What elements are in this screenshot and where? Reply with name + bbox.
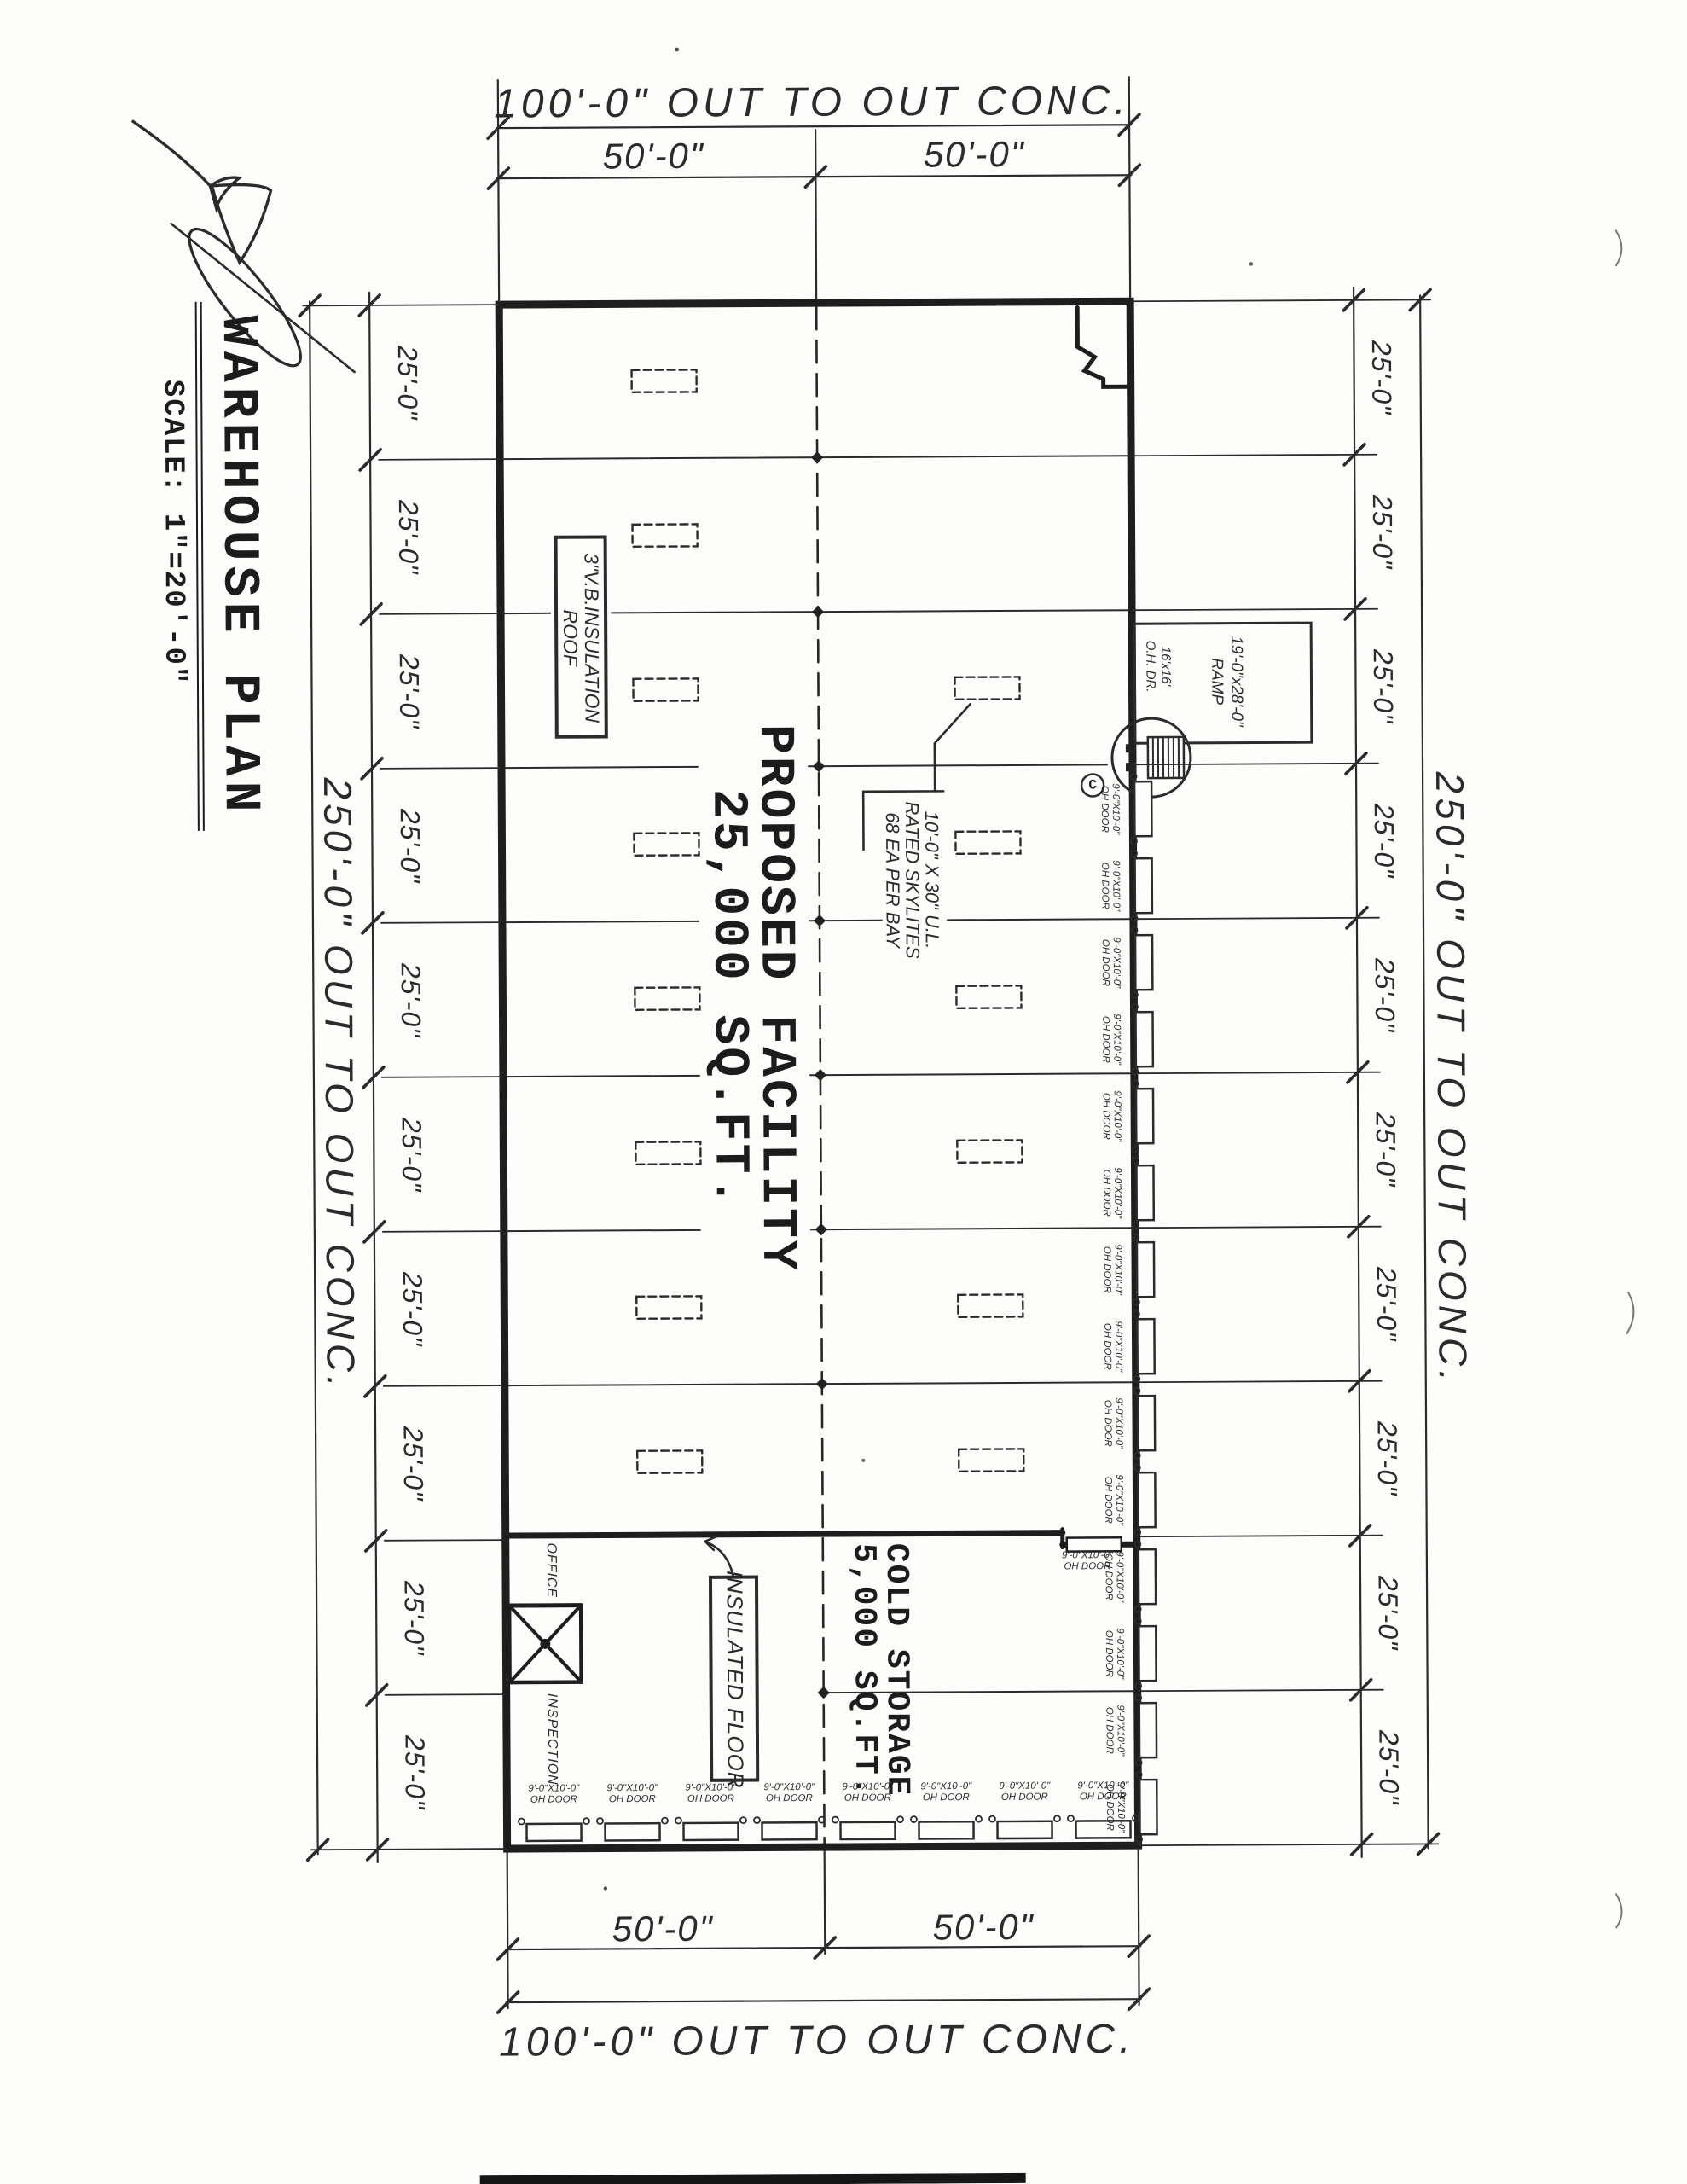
bay-centerline-node xyxy=(815,1069,826,1081)
bay-dim-label-left: 25'-0" xyxy=(394,808,426,883)
oh-door-label-bottom-line: 9'-0"X10'-0" xyxy=(1077,1780,1128,1792)
left-extension-line xyxy=(386,1694,505,1695)
bay-centerline-node xyxy=(814,915,826,926)
oh-door-label-line: 9'-0"X10'-0" xyxy=(1112,1321,1123,1372)
ramp-line2: RAMP xyxy=(1206,636,1226,726)
left-extension-line xyxy=(311,1849,506,1850)
bay-dim-label-left: 25'-0" xyxy=(398,1734,430,1809)
oh-door-label-line: 9'-0"X10'-0" xyxy=(1110,860,1122,911)
bottom-overall-dim-line xyxy=(507,1999,1141,2002)
dock-door-symbol xyxy=(1135,935,1152,990)
dock-door-symbol xyxy=(997,1821,1052,1838)
oh-door-label-line: 9'-0"X10'-0" xyxy=(1113,1397,1124,1449)
oh-door-label-line: OH DOOR xyxy=(1099,783,1110,834)
oh-door-label-bottom-line: OH DOOR xyxy=(999,1792,1050,1804)
dock-door-symbol xyxy=(1137,1242,1154,1297)
oh-door-label-bottom-line: OH DOOR xyxy=(606,1794,658,1806)
oh-door-label: 9'-0"X10'-0"OH DOOR xyxy=(1099,937,1122,988)
dim-top-overall: 100'-0" OUT TO OUT CONC. xyxy=(494,78,1130,128)
bay-dim-label-left: 25'-0" xyxy=(397,1580,429,1655)
dim-top-seg-left: 50'-0" xyxy=(603,136,704,177)
door-hinge-dot xyxy=(1054,1815,1060,1821)
dock-door-symbol xyxy=(1139,1549,1156,1604)
bay-centerline-node xyxy=(811,451,823,463)
dock-door-symbol xyxy=(919,1821,973,1838)
sheet-title-wrap: WAREHOUSE PLAN xyxy=(200,315,269,816)
oh-door-label-line: OH DOOR xyxy=(1101,1167,1112,1218)
bay-line xyxy=(507,1076,699,1077)
left-extension-line xyxy=(383,1231,502,1232)
oh-door-label: 9'-0"X10'-0"OH DOOR xyxy=(1104,1628,1126,1679)
dim-bottom-seg-right: 50'-0" xyxy=(933,1907,1035,1949)
oh-door-label-bottom: 9'-0"X10'-0"OH DOOR xyxy=(1077,1780,1128,1804)
ohdr-line1: 16'x16' xyxy=(1157,641,1173,693)
door-hinge-dot xyxy=(583,1818,589,1824)
oh-door-label-line: OH DOOR xyxy=(1099,937,1110,988)
dim-top-seg-right: 50'-0" xyxy=(924,134,1025,176)
oh-door-label-line: 9'-0"X10'-0" xyxy=(1112,1244,1123,1295)
oh-door-label: 9'-0"X10'-0"OH DOOR xyxy=(1099,783,1121,834)
bay-dim-label-right: 25'-0" xyxy=(1366,494,1398,569)
oh-door-label-line: OH DOOR xyxy=(1103,1551,1114,1602)
oh-door-label-line: 9'-0"X10'-0" xyxy=(1114,1551,1125,1602)
left-extension-line xyxy=(303,305,497,305)
roof-note: 3"V.B.INSULATION ROOF xyxy=(559,553,603,723)
dock-door-symbol xyxy=(526,1824,581,1841)
facility-line2: 25,000 SQ.FT. xyxy=(704,724,753,1273)
bay-dim-label-right: 25'-0" xyxy=(1369,957,1400,1032)
door-hinge-dot xyxy=(1068,1815,1074,1821)
oh-door-label-bottom: 9'-0"X10'-0"OH DOOR xyxy=(528,1783,579,1806)
oh-door-label: 9'-0"X10'-0"OH DOOR xyxy=(1104,1705,1126,1756)
left-extension-line xyxy=(385,1540,504,1541)
bay-centerline-node xyxy=(815,1223,827,1235)
inspection-label: INSPECTION xyxy=(544,1693,560,1786)
right-extension-line xyxy=(1140,1844,1439,1845)
bay-dim-label-left: 25'-0" xyxy=(393,653,425,729)
oh-door-label-line: 9'-0"X10'-0" xyxy=(1111,1167,1122,1218)
bay-dim-label-right: 25'-0" xyxy=(1371,1575,1403,1650)
dock-door-symbol xyxy=(1137,1319,1154,1374)
skylight xyxy=(958,1294,1023,1316)
ramp-line1: 19'-0"x28'-0" xyxy=(1226,636,1245,726)
oh-door-label: 9'-0"X10'-0"OH DOOR xyxy=(1103,1551,1125,1602)
oh-door-label-bottom: 9'-0"X10'-0"OH DOOR xyxy=(606,1783,658,1806)
bay-dim-label-left: 25'-0" xyxy=(397,1271,428,1346)
dim-left-overall: 250'-0" OUT TO OUT CONC. xyxy=(315,777,364,1391)
insulated-floor-label: INSULATED FLOOR xyxy=(721,1571,748,1789)
bay-dim-label-right: 25'-0" xyxy=(1372,1729,1404,1804)
dock-door-symbol xyxy=(1139,1780,1157,1834)
oh-door-label-bottom-line: 9'-0"X10'-0" xyxy=(763,1782,815,1794)
skylite-note-line1: 10'-0" X 30" U.L. xyxy=(922,801,942,958)
oh-door-label-bottom-line: OH DOOR xyxy=(1077,1792,1128,1804)
bottom-extension xyxy=(1139,1849,1139,2005)
bay-dim-label-left: 25'-0" xyxy=(397,1426,429,1501)
bay-dim-label-left: 25'-0" xyxy=(392,499,424,574)
right-extension-line xyxy=(1135,918,1379,919)
dock-door-symbol xyxy=(1134,781,1151,836)
ramp-label: 19'-0"x28'-0" RAMP xyxy=(1206,636,1245,727)
bay-centerline-node xyxy=(816,1378,828,1390)
oh-door-label: 9'-0"X10'-0"OH DOOR xyxy=(1100,1090,1122,1141)
oh-door-label-line: OH DOOR xyxy=(1104,1705,1115,1756)
door-hinge-dot xyxy=(519,1818,525,1824)
door-hinge-dot xyxy=(911,1816,917,1822)
bay-dim-label-right: 25'-0" xyxy=(1371,1420,1403,1496)
left-extension-line xyxy=(381,922,501,923)
cold-line2: 5,000 SQ.FT. xyxy=(847,1543,881,1798)
oh-door-label-line: 9'-0"X10'-0" xyxy=(1111,1014,1122,1065)
top-extension xyxy=(815,130,816,299)
dock-door-symbol xyxy=(1136,1165,1153,1220)
sheet-title: WAREHOUSE PLAN xyxy=(208,315,269,816)
dim-right-overall: 250'-0" OUT TO OUT CONC. xyxy=(1427,771,1476,1385)
oh-door-label-line: 9'-0"X10'-0" xyxy=(1110,783,1121,834)
oh-door-label: 9'-0"X10'-0"OH DOOR xyxy=(1103,1474,1125,1525)
dock-door-symbol xyxy=(1138,1472,1155,1527)
skylite-note-line2: RATED SKYLITES xyxy=(902,801,923,958)
oh-door-label-bottom-line: 9'-0"X10'-0" xyxy=(920,1781,971,1793)
right-extension-line xyxy=(1132,299,1430,301)
oh-door-label-bottom-line: OH DOOR xyxy=(528,1795,579,1807)
skylight xyxy=(637,1450,702,1472)
skylight xyxy=(955,831,1020,853)
cold-storage-door-symbol xyxy=(1067,1537,1122,1551)
facility-label: PROPOSED FACILITY 25,000 SQ.FT. xyxy=(704,724,801,1273)
oh-door-label: 9'-0"X10'-0"OH DOOR xyxy=(1102,1321,1124,1372)
facility-line1: PROPOSED FACILITY xyxy=(751,724,800,1273)
bay-line xyxy=(810,1073,1131,1075)
oh-door-label-line: OH DOOR xyxy=(1099,860,1110,911)
oh-door-label-line: 9'-0"X10'-0" xyxy=(1113,1474,1124,1525)
oh-door-label-bottom-line: OH DOOR xyxy=(685,1794,736,1806)
oh-door-label-line: OH DOOR xyxy=(1102,1397,1113,1449)
oh-door-label: 9'-0"X10'-0"OH DOOR xyxy=(1100,1014,1122,1065)
right-extension-line xyxy=(1133,455,1377,456)
dim-bottom-seg-left: 50'-0" xyxy=(612,1908,714,1950)
keynote-bubble-letter: C xyxy=(1088,777,1097,793)
left-extension-line xyxy=(379,459,498,460)
oh-door-label-line: 9'-0"X10'-0" xyxy=(1114,1628,1125,1679)
left-extension-line xyxy=(382,1077,501,1077)
bay-dim-label-left: 25'-0" xyxy=(391,345,423,420)
bay-dim-label-right: 25'-0" xyxy=(1371,1266,1402,1341)
oh-door-label: 9'-0"X10'-0"OH DOOR xyxy=(1102,1397,1124,1449)
left-extension-line xyxy=(380,768,500,769)
oh-door-label: 9'-0"X10'-0"OH DOOR xyxy=(1099,860,1122,911)
dock-door-symbol xyxy=(605,1823,659,1840)
skylight xyxy=(635,1141,700,1164)
oh-door-label-bottom-line: 9'-0"X10'-0" xyxy=(999,1781,1050,1793)
bottom-extension xyxy=(507,1852,508,2008)
cold-storage-label: COLD STORAGE 5,000 SQ.FT. xyxy=(847,1543,913,1798)
oh-door-label-bottom: 9'-0"X10'-0"OH DOOR xyxy=(999,1781,1050,1804)
skylite-note-line3: 68 EA PER BAY xyxy=(883,802,903,959)
bay-dim-label-left: 25'-0" xyxy=(395,962,426,1037)
skylight xyxy=(954,677,1019,699)
door-hinge-dot xyxy=(989,1816,995,1822)
bottom-extension xyxy=(825,1850,826,1954)
right-extension-line xyxy=(1139,1690,1383,1691)
bay-dim-label-right: 25'-0" xyxy=(1368,803,1400,878)
bay-centerline-node xyxy=(818,1687,830,1699)
dock-door-symbol xyxy=(1136,1089,1153,1143)
door-hinge-dot xyxy=(976,1816,982,1822)
oh-door-label-bottom-line: OH DOOR xyxy=(763,1793,815,1805)
skylight xyxy=(634,833,699,855)
skylight xyxy=(632,369,697,392)
bay-line xyxy=(811,1228,1132,1229)
scale-label: SCALE: 1"=20'-0" xyxy=(156,380,190,686)
oh-door-label-bottom-line: OH DOOR xyxy=(920,1792,971,1804)
right-extension-line xyxy=(1136,1072,1380,1073)
oh-door-label-bottom-line: OH DOOR xyxy=(842,1793,893,1805)
bay-line xyxy=(505,767,698,768)
dim-bottom-overall: 100'-0" OUT TO OUT CONC. xyxy=(499,2016,1135,2066)
left-extension-line xyxy=(384,1385,503,1386)
cold-line1: COLD STORAGE xyxy=(879,1543,913,1798)
skylite-note: 10'-0" X 30" U.L. RATED SKYLITES 68 EA P… xyxy=(883,801,942,959)
bay-dim-label-right: 25'-0" xyxy=(1370,1112,1401,1187)
office-label: OFFICE xyxy=(543,1542,559,1598)
dock-door-symbol xyxy=(1139,1626,1156,1681)
dock-door-symbol xyxy=(840,1822,895,1839)
bay-line xyxy=(612,610,1128,613)
oh-door-label-bottom-line: 9'-0"X10'-0" xyxy=(842,1781,893,1793)
oh-door-label-line: OH DOOR xyxy=(1100,1014,1111,1065)
oh-door-label: 9'-0"X10'-0"OH DOOR xyxy=(1101,1167,1123,1218)
bay-dim-label-left: 25'-0" xyxy=(396,1117,427,1192)
door-hinge-dot xyxy=(662,1818,668,1824)
door-hinge-dot xyxy=(832,1817,838,1823)
oh-door-label-bottom: 9'-0"X10'-0"OH DOOR xyxy=(842,1781,893,1804)
door-hinge-dot xyxy=(754,1817,760,1823)
bay-centerline-node xyxy=(812,606,824,618)
oh-door-label-line: OH DOOR xyxy=(1101,1244,1112,1295)
oh-door-label-line: OH DOOR xyxy=(1104,1628,1115,1679)
oh-door-label: 9'-0"X10'-0"OH DOOR xyxy=(1101,1244,1123,1295)
bay-line xyxy=(809,764,1107,766)
bay-line xyxy=(506,921,699,922)
bay-dim-label-right: 25'-0" xyxy=(1367,648,1399,723)
skylight xyxy=(957,1140,1022,1162)
right-extension-line xyxy=(1137,1227,1381,1228)
dock-door-symbol xyxy=(1139,1703,1157,1757)
scanned-warehouse-plan-sheet: WAREHOUSE PLAN SCALE: 1"=20'-0" 100'-0" … xyxy=(0,0,1687,2184)
ohdr-label: 16'x16' O.H. DR. xyxy=(1142,641,1173,693)
skylight xyxy=(959,1449,1023,1471)
oh-door-label-line: OH DOOR xyxy=(1103,1474,1114,1525)
oh-door-label-line: OH DOOR xyxy=(1100,1090,1111,1141)
ohdr-line2: O.H. DR. xyxy=(1142,641,1157,693)
dock-door-symbol xyxy=(1135,858,1152,913)
door-hinge-dot xyxy=(597,1818,603,1824)
roof-note-line2: ROOF xyxy=(559,553,582,723)
dock-door-symbol xyxy=(1136,1012,1153,1066)
skylight xyxy=(633,678,698,700)
oh-door-label-bottom-line: 9'-0"X10'-0" xyxy=(528,1783,579,1795)
oh-door-label-bottom: 9'-0"X10'-0"OH DOOR xyxy=(685,1782,736,1805)
oh-door-label-bottom: 9'-0"X10'-0"OH DOOR xyxy=(763,1782,815,1805)
bay-line xyxy=(507,1230,700,1231)
left-extension-line xyxy=(380,613,499,614)
skylight xyxy=(956,985,1021,1008)
bay-centerline-node xyxy=(813,760,825,772)
inspection-xbox xyxy=(509,1606,581,1682)
skylight xyxy=(636,1296,701,1318)
oh-door-label-bottom-line: 9'-0"X10'-0" xyxy=(606,1783,658,1795)
bay-line xyxy=(948,919,1130,920)
door-hinge-dot xyxy=(740,1817,746,1823)
skylight xyxy=(633,524,698,546)
right-extension-line xyxy=(1133,609,1377,610)
right-extension-line xyxy=(1138,1381,1382,1382)
skylight xyxy=(635,987,699,1009)
oh-door-label-line: 9'-0"X10'-0" xyxy=(1110,937,1122,988)
right-extension-line xyxy=(1139,1536,1383,1536)
door-hinge-dot xyxy=(897,1816,903,1822)
dock-door-symbol xyxy=(1138,1396,1155,1450)
dock-door-symbol xyxy=(762,1822,816,1839)
right-overall-dim-line xyxy=(1420,295,1429,1848)
oh-door-label-line: 9'-0"X10'-0" xyxy=(1115,1705,1126,1756)
corner-notch xyxy=(1077,307,1127,386)
roof-note-line1: 3"V.B.INSULATION xyxy=(581,553,603,723)
oh-door-label-line: OH DOOR xyxy=(1102,1321,1113,1372)
oh-door-label-bottom: 9'-0"X10'-0"OH DOOR xyxy=(920,1781,971,1804)
drawing-sheet: WAREHOUSE PLAN SCALE: 1"=20'-0" 100'-0" … xyxy=(0,0,1687,2184)
oh-door-label-line: 9'-0"X10'-0" xyxy=(1111,1090,1122,1141)
dock-door-symbol xyxy=(683,1823,738,1840)
bay-dim-label-right: 25'-0" xyxy=(1365,340,1397,415)
door-hinge-dot xyxy=(675,1818,681,1824)
oh-door-label-bottom-line: 9'-0"X10'-0" xyxy=(685,1782,736,1794)
